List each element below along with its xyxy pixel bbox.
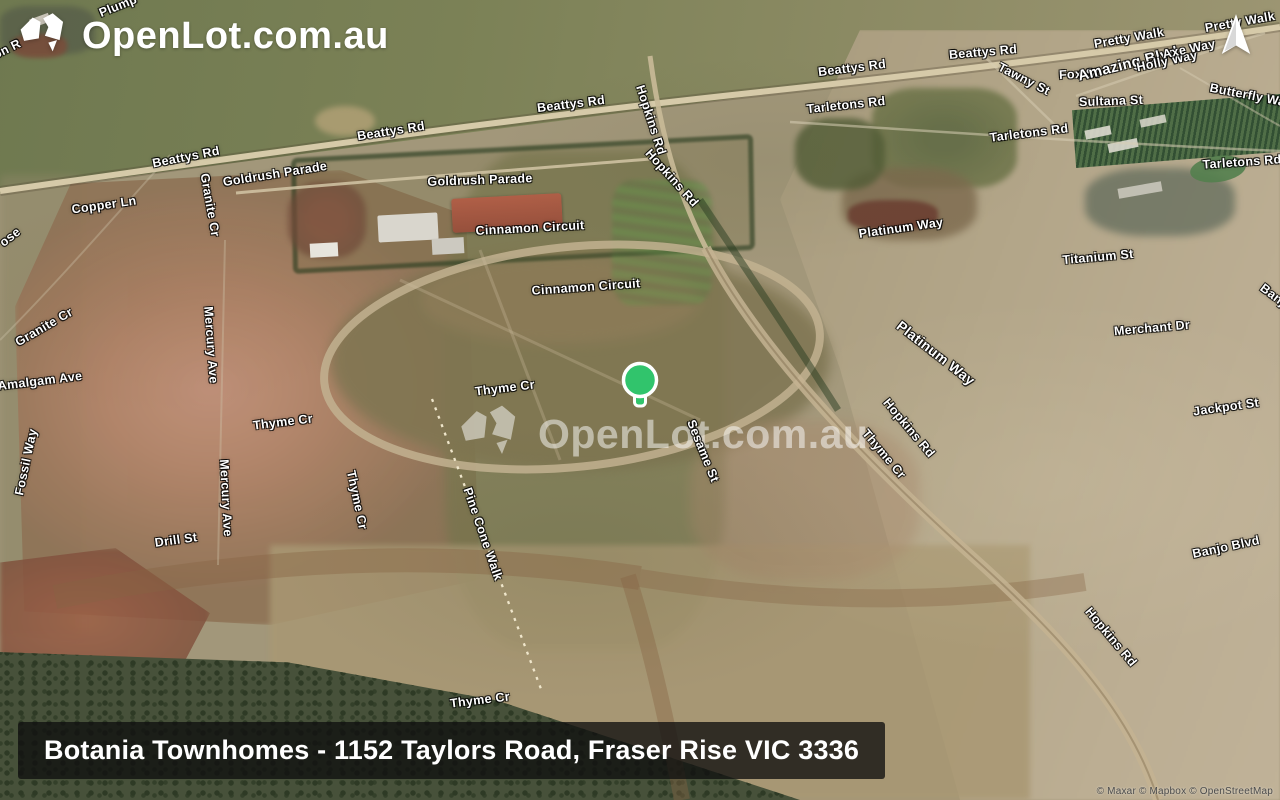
terrain-patch: [780, 30, 1280, 800]
building-patch: [310, 242, 339, 257]
road-label: Thyme Cr: [859, 426, 908, 481]
road-label: Pine Cone Walk: [461, 486, 506, 583]
north-arrow-icon: [1217, 45, 1255, 62]
road-label: Mercury Ave: [217, 459, 235, 537]
logo-text: OpenLot.com.au: [82, 15, 389, 58]
road-label: Hopkins Rd: [633, 83, 669, 156]
road-label: Mercury Ave: [201, 306, 220, 384]
terrain-patch: [1085, 168, 1235, 236]
road-label: Titanium St: [1062, 247, 1134, 267]
terrain-patch: [0, 175, 80, 635]
road-label: Thyme Cr: [252, 411, 313, 432]
compass-control[interactable]: [1217, 12, 1255, 63]
road-label: Tawny St: [996, 60, 1053, 98]
road-label: Beattys Rd: [948, 42, 1017, 62]
building-patch: [451, 193, 563, 233]
terrain-patch: [872, 88, 1017, 188]
terrain-patch: [445, 150, 725, 650]
road-label: Banj: [1257, 281, 1280, 309]
watermark: OpenLot.com.au: [458, 404, 868, 465]
road-label: Thyme Cr: [449, 689, 510, 710]
vineyard-patch: [1072, 94, 1280, 168]
pine-cone-walk-path: [432, 399, 541, 689]
road-label: Tarletons Rd: [806, 94, 886, 116]
farm-boundary-patch: [291, 134, 755, 274]
terrain-patch: [420, 255, 700, 345]
road-label: Beattys Rd: [817, 57, 886, 79]
road-label: Jackpot St: [1192, 395, 1260, 418]
watermark-text: OpenLot.com.au: [538, 411, 868, 458]
location-marker[interactable]: [617, 360, 663, 423]
road-label: Amalgam Ave: [0, 369, 83, 393]
terrain-patch: [612, 180, 712, 305]
road-label: Sultana St: [1079, 93, 1144, 109]
road-label: Beattys Rd: [151, 144, 221, 171]
road-label: Merchant Dr: [1113, 318, 1190, 339]
road-label: Platinum Way: [894, 317, 979, 388]
screenshot-stage: OpenLot.com.au Plumpon RBeattys RdBeatty…: [0, 0, 1280, 800]
road-label: Butterfly Walk: [1209, 81, 1280, 111]
building-patch: [1117, 181, 1162, 198]
road-label: Hopkins Rd: [1082, 605, 1139, 670]
terrain-patch: [330, 250, 830, 470]
road-label: Hopkins Rd: [643, 146, 702, 209]
building-patch: [432, 237, 465, 255]
road-label: Beattys Rd: [356, 119, 426, 144]
road-label: Beattys Rd: [536, 93, 605, 115]
road-label: ose: [0, 225, 23, 250]
road-label: Banjo Blvd: [1191, 533, 1261, 561]
road-label: Cinnamon Circuit: [475, 218, 585, 238]
terrain-patch: [848, 200, 938, 230]
map-canvas[interactable]: OpenLot.com.au Plumpon RBeattys RdBeatty…: [0, 0, 1280, 800]
racetrack-oval: [313, 222, 831, 493]
road-label: Sesame St: [684, 418, 722, 484]
road-label: Copper Ln: [71, 194, 138, 217]
road-label: Thyme Cr: [344, 469, 370, 531]
road-label: Pretty Walk: [1093, 25, 1165, 51]
road-label: Axe Way: [1161, 37, 1216, 62]
australia-map-icon: [458, 404, 524, 465]
terrain-patch: [288, 182, 366, 258]
road-label: Granite Cr: [198, 172, 223, 238]
terrain-patch: [795, 118, 885, 190]
road-label: Thyme Cr: [474, 377, 535, 398]
pond-patch: [1188, 152, 1247, 186]
property-banner: Botania Townhomes - 1152 Taylors Road, F…: [18, 722, 885, 779]
road-label: Fossil Way: [12, 427, 40, 496]
property-banner-text: Botania Townhomes - 1152 Taylors Road, F…: [44, 735, 859, 766]
building-patch: [1107, 138, 1138, 153]
road-label: Platinum Way: [858, 215, 944, 241]
map-attribution[interactable]: © Maxar © Mapbox © OpenStreetMap: [1097, 786, 1273, 797]
road-label: Fox St: [1059, 66, 1100, 82]
road-label: Granite Cr: [13, 305, 76, 349]
building-patch: [1084, 125, 1111, 139]
road-label: Cinnamon Circuit: [531, 276, 641, 298]
road-label: Amazing Blvd: [1076, 43, 1180, 84]
building-patch: [1139, 114, 1166, 127]
road-label: Holly Way: [1135, 48, 1199, 75]
openlot-logo[interactable]: OpenLot.com.au: [18, 12, 389, 61]
building-patch: [377, 212, 438, 242]
terrain-patch: [15, 170, 480, 625]
terrain-patch: [315, 106, 375, 136]
road-label: Goldrush Parade: [427, 171, 533, 189]
terrain-patch: [690, 420, 920, 580]
road-label: Drill St: [154, 530, 198, 550]
road-label: Tarletons Rd: [989, 121, 1069, 145]
terrain-patch: [0, 548, 210, 693]
road-label: Goldrush Parade: [222, 159, 328, 189]
road-label: Hopkins Rd: [880, 396, 937, 461]
australia-map-icon: [18, 12, 70, 61]
road-label: Tarletons Rd: [1202, 152, 1280, 171]
terrain-patch: [842, 168, 977, 240]
